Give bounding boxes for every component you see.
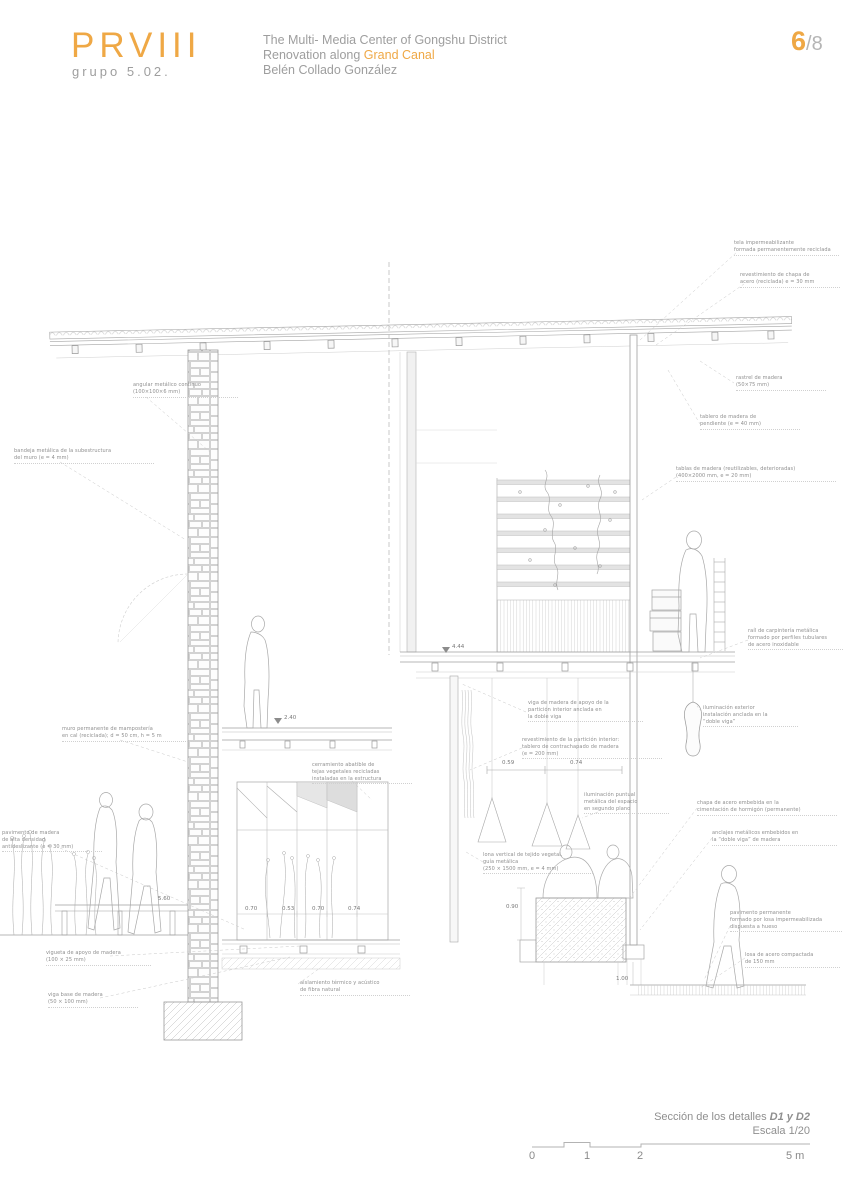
section-drawing	[0, 0, 848, 1200]
grand-canal-highlight: Grand Canal	[364, 48, 435, 62]
ladder	[714, 558, 725, 651]
triangle-lamps	[478, 678, 590, 849]
right-ground	[630, 962, 806, 995]
interior-plant	[265, 852, 335, 939]
insulation-strip	[222, 958, 400, 969]
door-swing	[118, 574, 188, 644]
group-label: grupo 5.02.	[72, 64, 171, 79]
logo-prviii: PRVIII	[71, 26, 202, 66]
author-name: Belén Collado González	[263, 63, 507, 78]
masonry-pier	[164, 350, 242, 1040]
curtain	[462, 690, 474, 818]
lower-floor-left	[222, 940, 400, 969]
stacked-boxes	[650, 590, 681, 651]
trellis-wall	[497, 470, 630, 652]
glazed-partition	[237, 782, 388, 940]
plants-left	[10, 830, 96, 935]
caption-prefix: Sección de los detalles	[654, 1111, 770, 1123]
center-post	[407, 352, 416, 652]
sheet: tela impermeabilizante formada permanent…	[0, 0, 848, 1200]
concrete-block	[520, 898, 626, 985]
project-title-line2: Renovation along Grand Canal	[263, 48, 507, 63]
title-line2-prefix: Renovation along	[263, 48, 364, 62]
seated-figures	[543, 845, 633, 898]
person-figure-right	[706, 866, 744, 989]
level-marker	[274, 718, 282, 724]
person-figures-outdoor	[88, 793, 161, 935]
page-total: /8	[806, 33, 823, 55]
caption-line: Sección de los detalles D1 y D2	[654, 1110, 810, 1124]
page-current: 6	[791, 26, 806, 56]
pendant-lamp	[684, 662, 701, 756]
person-figure-left-bay	[244, 616, 269, 728]
dimension-line	[237, 911, 388, 917]
pier-foundation	[164, 1002, 242, 1040]
scale-bar	[532, 1143, 810, 1148]
curtain-post	[450, 676, 474, 942]
right-post	[630, 335, 637, 945]
wood-panel-wall	[497, 600, 630, 652]
mid-floor-left	[222, 718, 392, 750]
leader-lines	[60, 252, 748, 998]
project-title: The Multi- Media Center of Gongshu Distr…	[263, 33, 507, 78]
detail-ids: D1 y D2	[770, 1111, 810, 1123]
sheet-caption: Sección de los detalles D1 y D2 Escala 1…	[654, 1110, 810, 1138]
vine-plants	[519, 470, 617, 590]
scale-label: Escala 1/20	[654, 1124, 810, 1138]
page-number: 6/8	[791, 26, 823, 57]
person-figure-upper	[678, 531, 707, 652]
project-title-line1: The Multi- Media Center of Gongshu Distr…	[263, 33, 507, 48]
roof	[50, 317, 792, 359]
